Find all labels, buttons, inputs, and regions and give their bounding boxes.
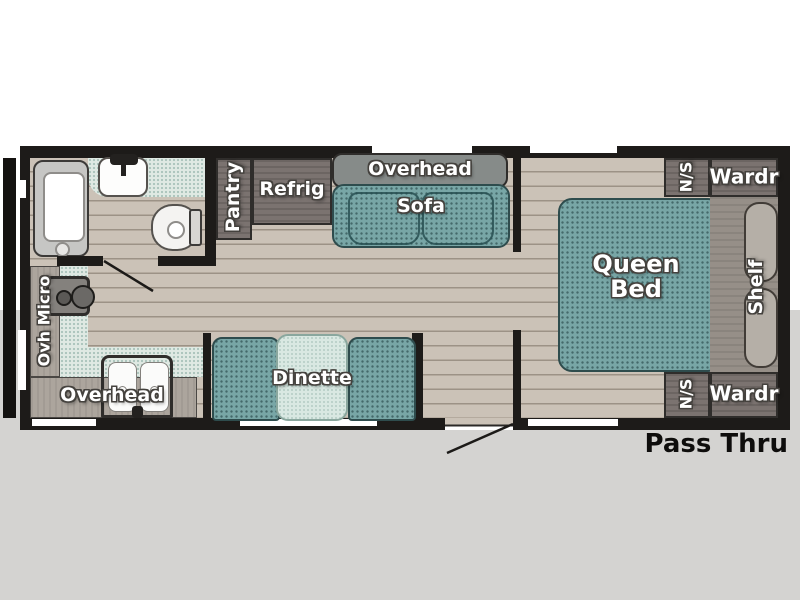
pass-thru-label: Pass Thru — [645, 429, 788, 459]
shelf-label: Shelf — [747, 260, 767, 315]
kitchen-overhead-label: Overhead — [60, 386, 164, 406]
refrigerator-label: Refrig — [259, 180, 324, 200]
rear-bumper — [3, 158, 16, 418]
dinette-label: Dinette — [272, 369, 352, 389]
window — [18, 180, 26, 198]
bathroom-wall — [158, 256, 216, 266]
wardrobe-top-label: Wardr — [710, 167, 779, 188]
window — [32, 419, 96, 426]
sofa-overhead-label: Overhead — [368, 160, 472, 180]
nightstand-top-label: N/S — [679, 162, 696, 193]
toilet-tank — [189, 209, 202, 246]
burner-icon — [56, 290, 72, 306]
shower — [33, 160, 89, 257]
entry-door-opening — [445, 418, 513, 430]
front-shelf — [710, 197, 778, 372]
bathroom-wall — [57, 256, 103, 266]
nightstand-bottom-label: N/S — [679, 379, 696, 410]
dinette-bench — [212, 337, 280, 421]
bathroom-wall — [205, 158, 216, 262]
window — [528, 419, 618, 426]
window — [372, 146, 472, 153]
window — [18, 330, 26, 390]
toilet-bowl-icon — [167, 221, 185, 239]
queen-bed-label: Queen Bed — [584, 252, 688, 302]
rv-floorplan: Pantry Refrig Overhead Sofa Queen Bed N/… — [0, 0, 800, 600]
dinette-bench — [348, 337, 416, 421]
sofa-label: Sofa — [397, 197, 445, 217]
dinette-wall — [203, 333, 211, 418]
range-hood-micro-label: Ovh Micro — [37, 276, 54, 367]
wardrobe-bottom-label: Wardr — [710, 384, 779, 405]
kitchen-faucet-icon — [132, 406, 143, 418]
window — [530, 146, 617, 153]
burner-icon — [71, 285, 95, 309]
bedroom-wall — [513, 158, 521, 252]
bedroom-wall — [513, 330, 521, 418]
shower-pan — [43, 172, 85, 242]
pantry-label: Pantry — [224, 162, 244, 233]
shower-drain-icon — [55, 242, 70, 257]
bathroom-faucet-icon — [121, 163, 126, 176]
